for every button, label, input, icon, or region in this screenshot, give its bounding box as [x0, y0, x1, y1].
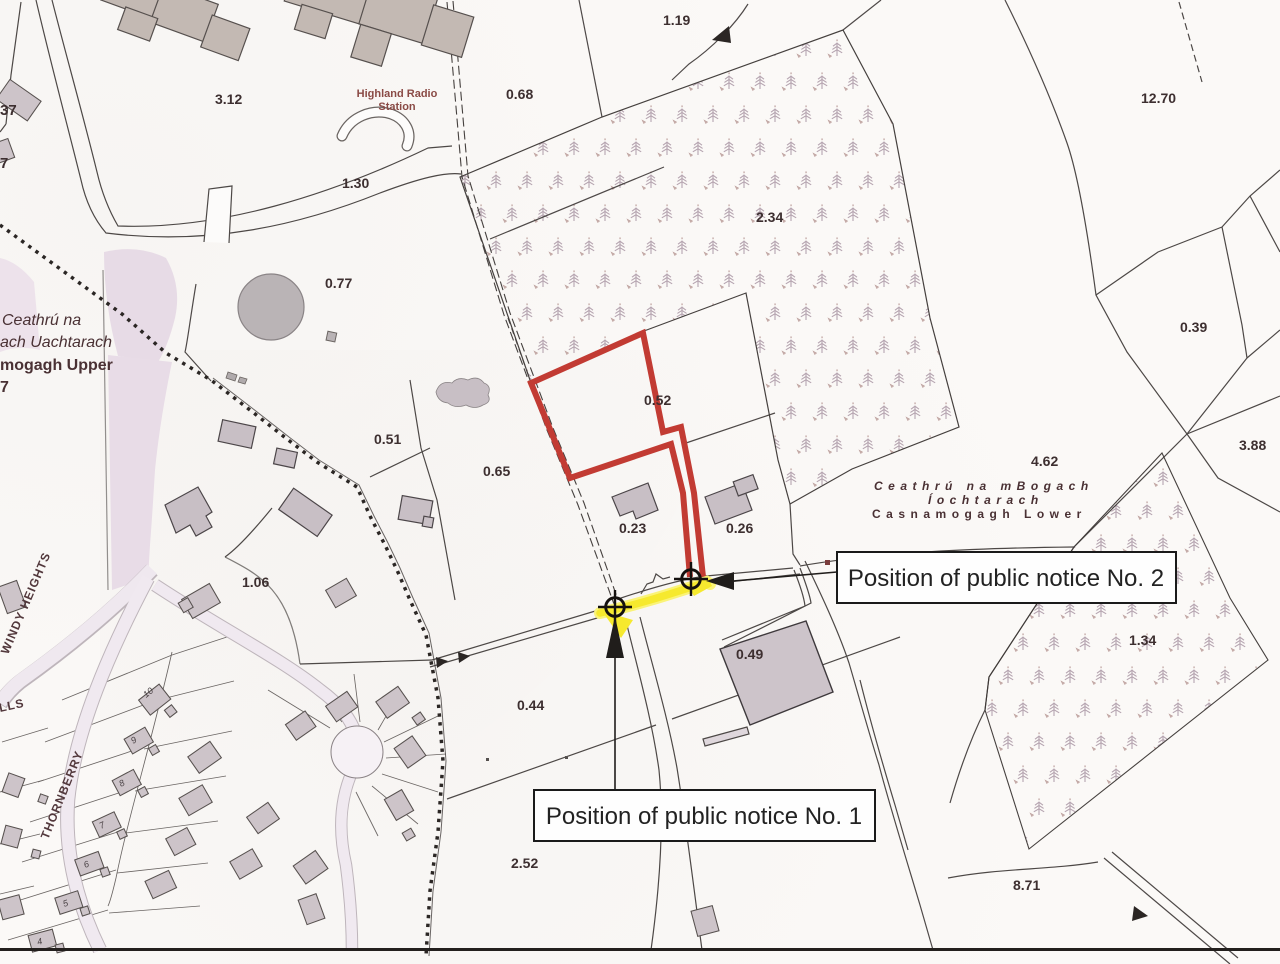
svg-text:3.12: 3.12: [215, 91, 242, 107]
svg-text:0.77: 0.77: [325, 275, 352, 291]
svg-text:12.70: 12.70: [1141, 90, 1176, 106]
svg-text:mogagh Upper: mogagh Upper: [0, 357, 113, 374]
svg-text:0.44: 0.44: [517, 697, 544, 713]
svg-text:0.39: 0.39: [1180, 319, 1207, 335]
svg-text:7: 7: [0, 379, 9, 396]
svg-text:0.23: 0.23: [619, 520, 646, 536]
svg-text:0.65: 0.65: [483, 463, 510, 479]
svg-text:Position of public notice No.: Position of public notice No. 1: [546, 803, 862, 830]
svg-text:0.68: 0.68: [506, 86, 533, 102]
svg-text:2.34: 2.34: [756, 209, 783, 225]
svg-text:Ceathrú na: Ceathrú na: [2, 312, 81, 329]
svg-text:Ceathrú na mBogach: Ceathrú na mBogach: [874, 479, 1094, 493]
svg-text:0.52: 0.52: [644, 392, 671, 408]
svg-text:0.49: 0.49: [736, 646, 763, 662]
svg-text:0.51: 0.51: [374, 431, 401, 447]
svg-text:7: 7: [0, 155, 8, 172]
svg-text:1.34: 1.34: [1129, 632, 1156, 648]
svg-text:37: 37: [0, 102, 17, 119]
svg-text:Casnamogagh Lower: Casnamogagh Lower: [872, 507, 1087, 521]
svg-text:8.71: 8.71: [1013, 877, 1040, 893]
svg-text:ach Uachtarach: ach Uachtarach: [0, 334, 112, 351]
svg-text:1.19: 1.19: [663, 12, 690, 28]
svg-text:Íochtarach: Íochtarach: [928, 492, 1044, 507]
svg-text:Station: Station: [378, 101, 416, 113]
svg-text:4.62: 4.62: [1031, 453, 1058, 469]
svg-text:Position of public notice No.: Position of public notice No. 2: [848, 565, 1164, 592]
svg-text:2.52: 2.52: [511, 855, 538, 871]
svg-text:0.26: 0.26: [726, 520, 753, 536]
svg-text:3.88: 3.88: [1239, 437, 1266, 453]
svg-text:1.06: 1.06: [242, 574, 269, 590]
svg-text:1.30: 1.30: [342, 175, 369, 191]
svg-text:Highland Radio: Highland Radio: [357, 88, 438, 100]
